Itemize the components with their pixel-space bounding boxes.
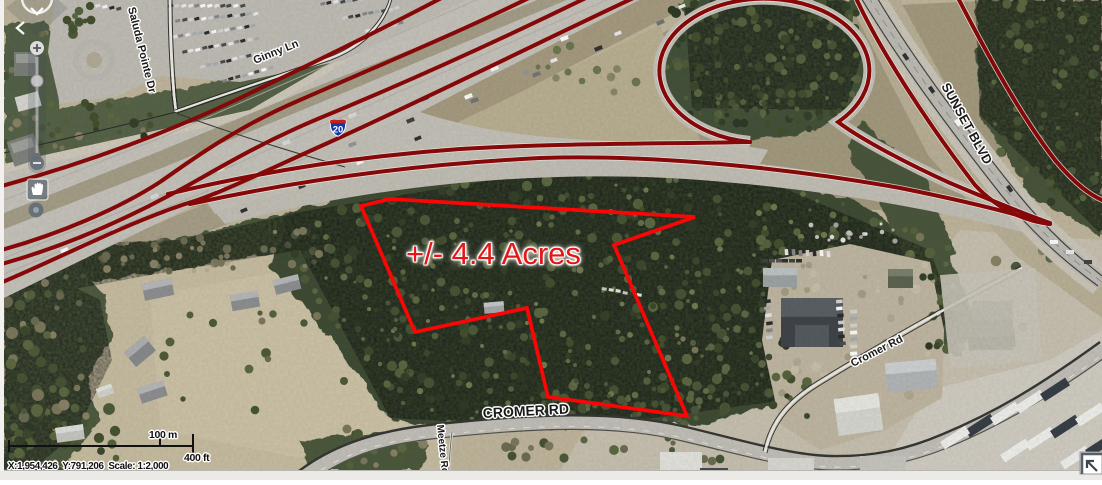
svg-text:100 m: 100 m (149, 429, 177, 441)
svg-text:+/- 4.4 Acres: +/- 4.4 Acres (406, 236, 581, 271)
svg-text:400 ft: 400 ft (184, 452, 210, 464)
svg-text:20: 20 (333, 125, 344, 136)
